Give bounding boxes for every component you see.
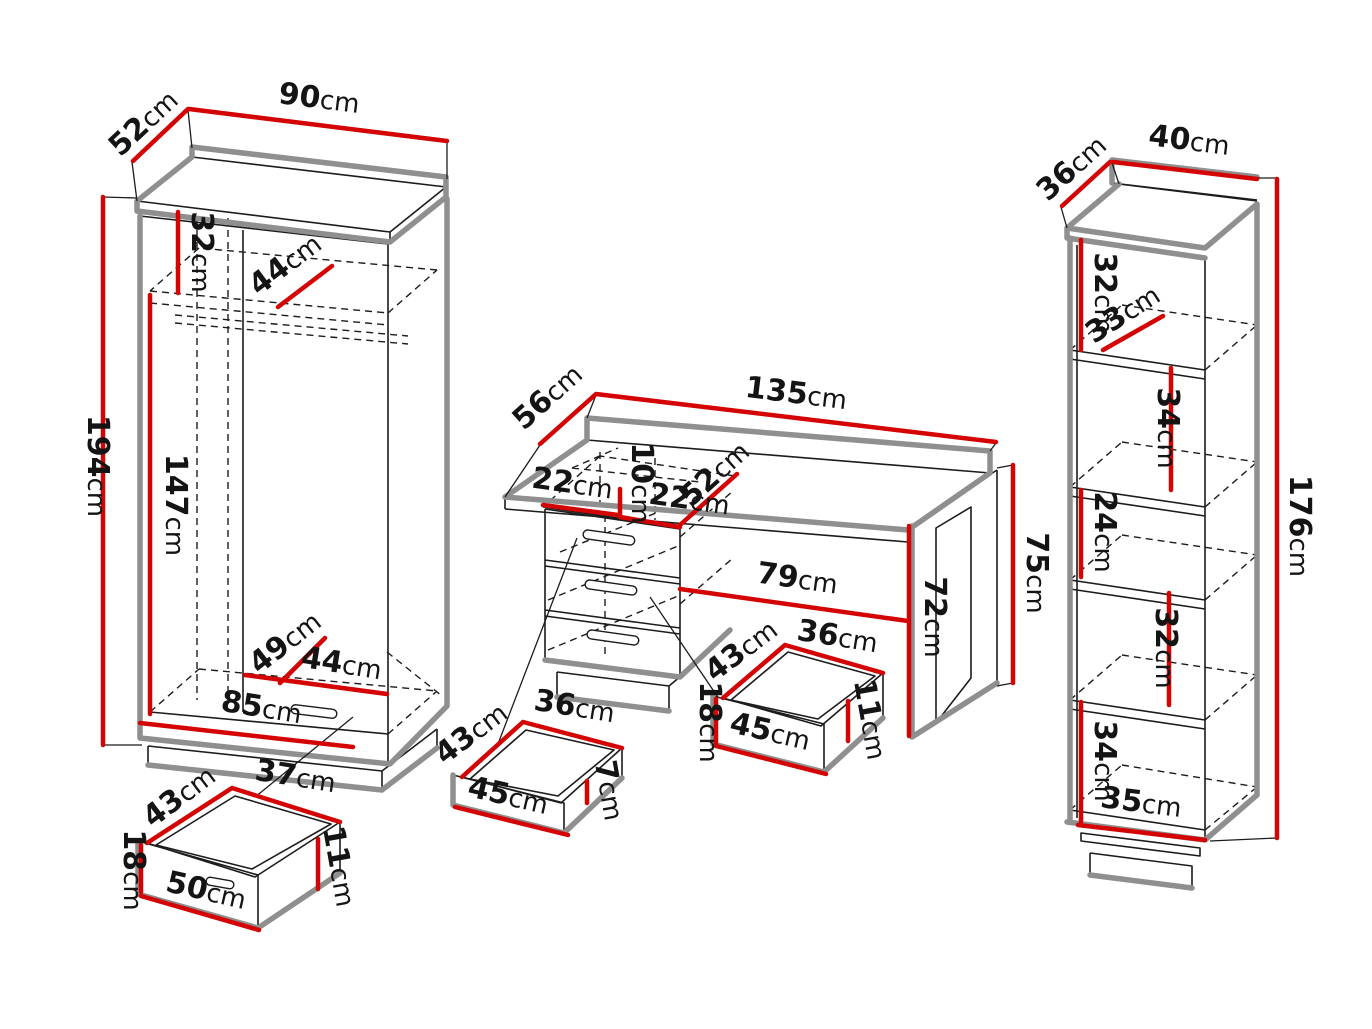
wardrobe-height-label: 194cm	[80, 415, 115, 517]
wardrobe-drawer-width-label: 37cm	[253, 753, 339, 800]
bookcase-compartment4-label: 32cm	[1148, 607, 1183, 688]
wardrobe-drawer-group: 43cm 37cm 18cm 50cm 11cm	[116, 753, 364, 930]
wardrobe-shelf-depth-label: 44cm	[242, 226, 328, 303]
bookcase-height-label: 176cm	[1282, 475, 1317, 577]
bookcase-base-width-label: 35cm	[1099, 780, 1184, 825]
wardrobe-drawer-inner-height-label: 11cm	[315, 823, 364, 909]
bookcase-group: 36cm 40cm 32cm 33cm 34cm 24cm 32cm 34cm …	[1030, 118, 1317, 888]
desk-large-drawer-inner-height-label: 11cm	[846, 676, 895, 762]
wardrobe-base-width-label: 44cm	[299, 640, 385, 687]
furniture-dimensions-diagram: 52cm 90cm 32cm 44cm 194cm 147cm 49cm 44c…	[0, 0, 1372, 1029]
desk-small-drawer-height-label: 7cm	[587, 758, 632, 824]
wardrobe-drawer-front-height-label: 18cm	[116, 829, 151, 910]
wardrobe-hanging-height-label: 147cm	[158, 454, 193, 556]
bookcase-compartment2-label: 34cm	[1150, 387, 1185, 468]
wardrobe-group: 52cm 90cm 32cm 44cm 194cm 147cm 49cm 44c…	[80, 76, 447, 865]
diagram-canvas: 52cm 90cm 32cm 44cm 194cm 147cm 49cm 44c…	[0, 0, 1372, 1029]
desk-leg-inner-height-label: 72cm	[917, 576, 952, 657]
desk-width-label: 135cm	[743, 370, 849, 417]
wardrobe-width-label: 90cm	[277, 76, 362, 121]
desk-small-drawer-group: 43cm 36cm 7cm 45cm	[428, 683, 632, 835]
bookcase-width-label: 40cm	[1147, 118, 1232, 163]
desk-height-label: 75cm	[1019, 532, 1054, 613]
desk-drawer2-handle-icon	[585, 579, 638, 595]
wardrobe-front-width-label: 85cm	[219, 684, 305, 731]
desk-drawer3-handle-icon	[587, 629, 640, 645]
desk-small-drawer-width-label: 36cm	[532, 683, 618, 730]
wardrobe-top-compartment-label: 32cm	[184, 211, 219, 292]
bookcase-compartment3-label: 24cm	[1087, 491, 1122, 572]
desk-depth-label: 56cm	[506, 357, 590, 437]
desk-large-drawer-front-height-label: 18cm	[692, 681, 727, 762]
desk-knee-space-label: 79cm	[755, 556, 840, 602]
